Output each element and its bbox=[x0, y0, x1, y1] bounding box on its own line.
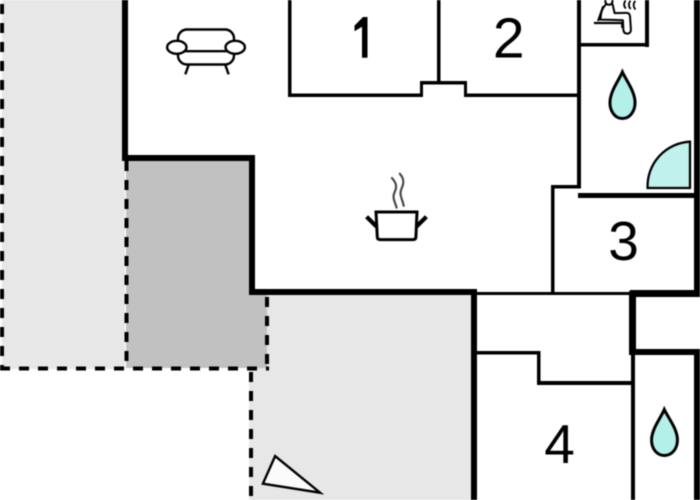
svg-text:2: 2 bbox=[493, 7, 525, 71]
svg-text:4: 4 bbox=[544, 413, 575, 475]
svg-text:3: 3 bbox=[608, 210, 639, 272]
